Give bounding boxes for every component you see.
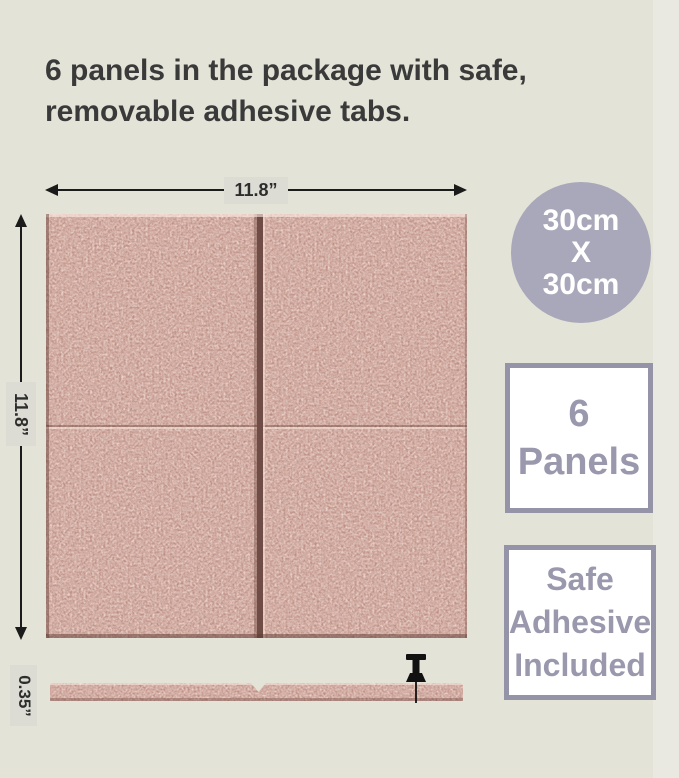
width-dimension-arrow: 11.8”	[45, 177, 467, 204]
acoustic-panels-photo	[46, 214, 467, 638]
panel-count-word: Panels	[518, 438, 641, 486]
height-dimension-arrow: 11.8”	[6, 214, 36, 640]
arrowhead-right-icon	[454, 184, 467, 196]
adhesive-line1: Safe	[546, 558, 614, 601]
arrowhead-down-icon	[15, 627, 27, 640]
page-title: 6 panels in the package with safe, remov…	[45, 50, 655, 132]
page-title-line2: removable adhesive tabs.	[45, 91, 655, 132]
thickness-dimension-label: 0.35”	[10, 665, 37, 726]
page-title-line1: 6 panels in the package with safe,	[45, 50, 655, 91]
height-dimension-label: 11.8”	[6, 382, 36, 446]
panel-count-badge: 6 Panels	[505, 363, 653, 513]
size-circle-badge: 30cm X 30cm	[511, 182, 651, 323]
safe-adhesive-badge: Safe Adhesive Included	[504, 545, 656, 700]
width-dimension-label: 11.8”	[224, 177, 288, 204]
arrowhead-left-icon	[45, 184, 58, 196]
size-line1: 30cm	[543, 205, 620, 237]
panel-count-number: 6	[568, 390, 589, 438]
right-edge-strip	[653, 0, 679, 778]
adhesive-line3: Included	[514, 644, 646, 687]
size-line2: X	[571, 237, 591, 269]
size-line3: 30cm	[543, 269, 620, 301]
arrowhead-up-icon	[15, 214, 27, 227]
pushpin-icon	[399, 649, 433, 705]
product-infographic: 6 panels in the package with safe, remov…	[0, 0, 679, 778]
adhesive-line2: Adhesive	[509, 601, 651, 644]
